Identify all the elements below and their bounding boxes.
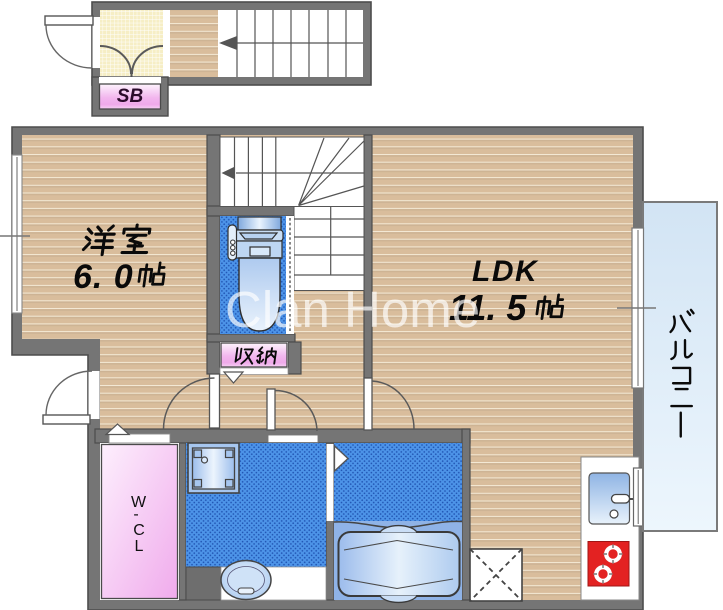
svg-text:-: -	[133, 506, 138, 523]
svg-text:C: C	[133, 522, 145, 539]
svg-text:L: L	[135, 538, 144, 555]
svg-text:LDK: LDK	[472, 255, 539, 288]
svg-text:Clan Home: Clan Home	[225, 281, 480, 338]
svg-text:6. 0: 6. 0	[73, 258, 134, 296]
svg-text:SB: SB	[117, 86, 144, 107]
